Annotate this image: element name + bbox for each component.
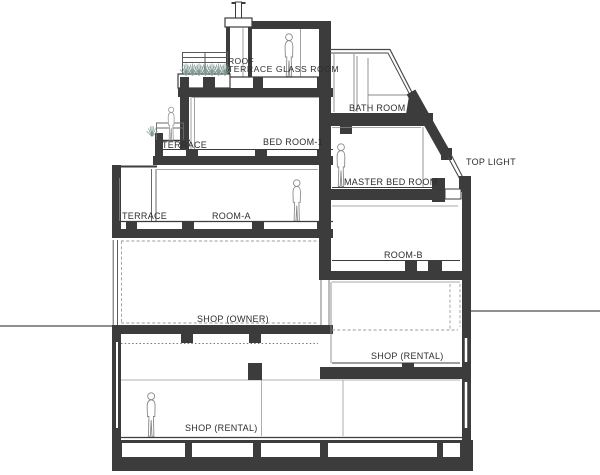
floor-slab xyxy=(319,271,462,280)
joist-block xyxy=(186,150,198,157)
joist-block xyxy=(182,222,194,230)
joist-block xyxy=(317,77,328,88)
label-shop-owner: SHOP (OWNER) xyxy=(197,315,269,324)
floor-slab xyxy=(178,88,333,97)
joist-block xyxy=(203,77,215,88)
section-drawing: ROOF TERRACE GLASS ROOM BATH ROOM TERRAC… xyxy=(0,0,600,475)
label-master-bed-room: MASTER BED ROOM xyxy=(344,178,438,187)
joist-block xyxy=(255,150,267,157)
roof-line-inner xyxy=(330,53,410,95)
joist-block xyxy=(126,222,137,230)
label-terrace-lower: TERRACE xyxy=(122,212,167,221)
joist-block xyxy=(181,334,193,343)
footing-void xyxy=(122,443,185,457)
wall-right xyxy=(462,185,471,471)
shop-rental-lower-room xyxy=(112,334,460,440)
floor-level1 xyxy=(112,325,333,344)
footing-void xyxy=(192,443,253,457)
person-figure xyxy=(147,393,155,437)
footing-void xyxy=(261,443,320,457)
label-roof-terrace-glass-room-line2: TERRACE GLASS ROOM xyxy=(228,65,339,74)
label-bath-room: BATH ROOM xyxy=(349,104,406,113)
label-shop-rental-lower: SHOP (RENTAL) xyxy=(185,424,258,433)
person-figure xyxy=(168,107,174,140)
footing-void xyxy=(443,443,460,457)
wall-segment xyxy=(462,185,471,471)
floor-level3 xyxy=(153,150,333,166)
beam-block xyxy=(248,363,262,380)
roof-line xyxy=(330,50,412,93)
label-top-light: TOP LIGHT xyxy=(466,158,516,167)
floor-slab xyxy=(153,156,333,165)
label-bed-room-1: BED ROOM-1 xyxy=(263,138,323,147)
label-shop-rental-upper: SHOP (RENTAL) xyxy=(371,352,444,361)
floor-slab xyxy=(112,325,333,334)
shop-owner-room xyxy=(113,240,329,325)
person-figure xyxy=(293,180,300,221)
shaft-head xyxy=(225,18,252,27)
joist-block xyxy=(405,261,417,271)
floor-slab xyxy=(320,367,471,379)
joist-block xyxy=(317,222,329,230)
label-terrace-upper: TERRACE xyxy=(162,141,207,150)
footing-void xyxy=(328,443,437,457)
glass-room-roof-slab xyxy=(250,21,331,29)
joist-block xyxy=(249,334,261,343)
joist-block xyxy=(252,222,264,230)
shop-rental-upper-room xyxy=(320,282,471,379)
label-room-a: ROOM-A xyxy=(212,212,251,221)
vent-pipe xyxy=(236,2,242,18)
label-room-b: ROOM-B xyxy=(384,251,423,260)
joist-block xyxy=(253,77,263,88)
floor-level2 xyxy=(112,222,333,239)
floor-slab xyxy=(319,189,445,200)
ledge-box xyxy=(445,189,461,199)
room-b-room xyxy=(319,206,462,280)
joist-block xyxy=(317,150,329,157)
joist-block xyxy=(428,261,442,271)
slope-node xyxy=(441,148,452,160)
floor-slab xyxy=(112,229,333,238)
foundation xyxy=(112,438,473,472)
